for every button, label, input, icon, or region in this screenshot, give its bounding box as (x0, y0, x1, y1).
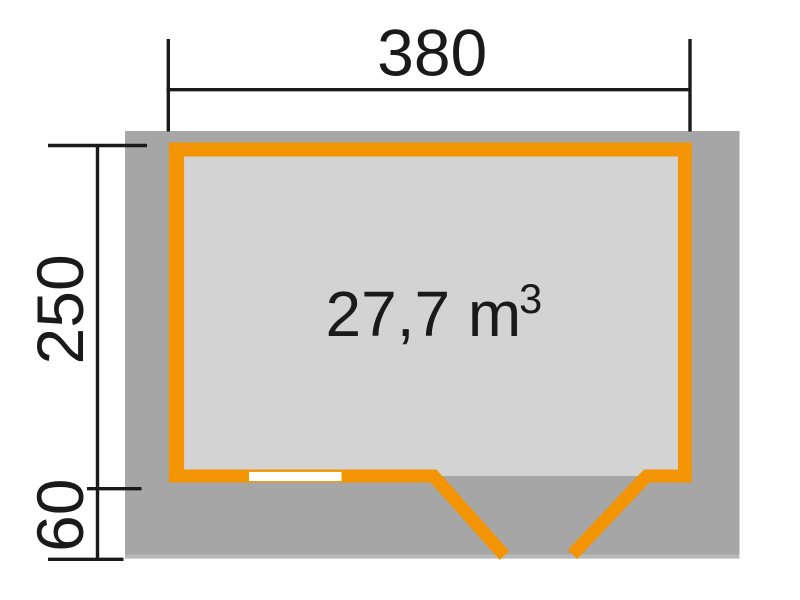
svg-text:250: 250 (23, 254, 97, 364)
svg-text:27,7 m3: 27,7 m3 (326, 275, 543, 350)
svg-text:60: 60 (23, 478, 97, 551)
svg-text:380: 380 (377, 15, 487, 89)
